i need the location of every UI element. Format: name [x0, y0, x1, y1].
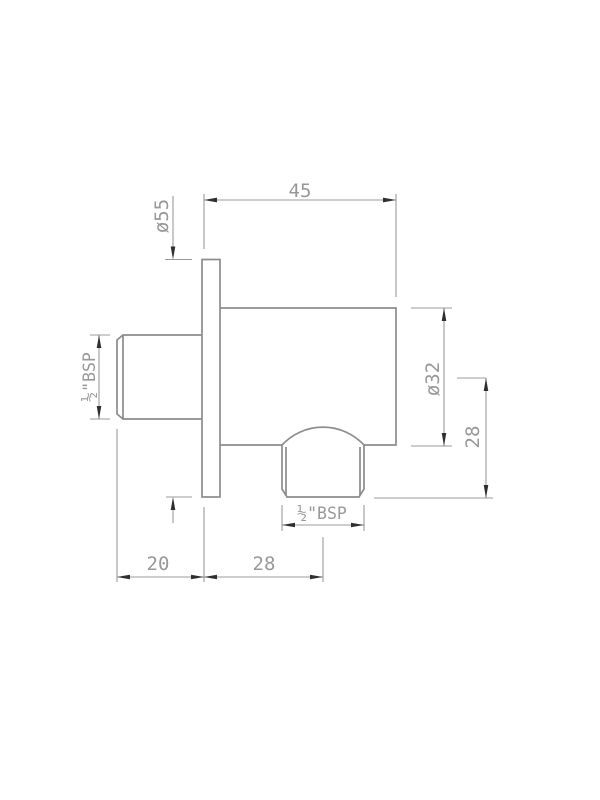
arrowhead-right — [383, 198, 396, 203]
arrowhead-left — [282, 523, 295, 528]
dim-body-diameter: ø32 — [411, 308, 452, 446]
arrowhead-up — [484, 378, 489, 391]
dim-label-inlet-length: 20 — [147, 553, 170, 575]
dim-label-outlet-center-offset: 28 — [253, 553, 276, 575]
dim-label-body-diameter: ø32 — [422, 362, 444, 396]
arrowhead-down — [484, 485, 489, 498]
technical-drawing: 45 ø55 ½"BSP ø32 28 — [0, 0, 600, 800]
body-outline — [220, 308, 396, 445]
arrowhead-left — [204, 198, 217, 203]
dim-label-flange-diameter: ø55 — [151, 199, 173, 233]
arrowhead-down — [442, 433, 447, 446]
dim-flange-diameter: ø55 — [151, 196, 192, 523]
part-outline — [117, 260, 396, 498]
arrowhead-down — [171, 247, 176, 260]
arrowhead-right — [310, 575, 323, 580]
dim-label-overall-depth: 45 — [289, 180, 312, 202]
arrowhead-up — [442, 308, 447, 321]
arrowhead-down — [97, 406, 102, 419]
dim-label-outlet-thread: ½"BSP — [297, 504, 347, 523]
arrowhead-left — [204, 575, 217, 580]
drawing-canvas: 45 ø55 ½"BSP ø32 28 — [0, 0, 600, 800]
dim-inlet-thread: ½"BSP — [80, 335, 110, 419]
outlet-spigot-outline — [282, 427, 364, 497]
arrowhead-right — [351, 523, 364, 528]
arrowhead-up — [171, 497, 176, 510]
dim-overall-depth: 45 — [204, 180, 396, 297]
wall-flange-outline — [202, 260, 220, 498]
dim-label-inlet-thread: ½"BSP — [80, 352, 99, 402]
arrowhead-up — [97, 335, 102, 348]
arrowhead-right — [191, 575, 204, 580]
dim-label-outlet-drop: 28 — [462, 426, 484, 449]
inlet-stub-outline — [117, 335, 202, 419]
arrowhead-left — [117, 575, 130, 580]
dim-outlet-thread: ½"BSP — [282, 504, 364, 582]
